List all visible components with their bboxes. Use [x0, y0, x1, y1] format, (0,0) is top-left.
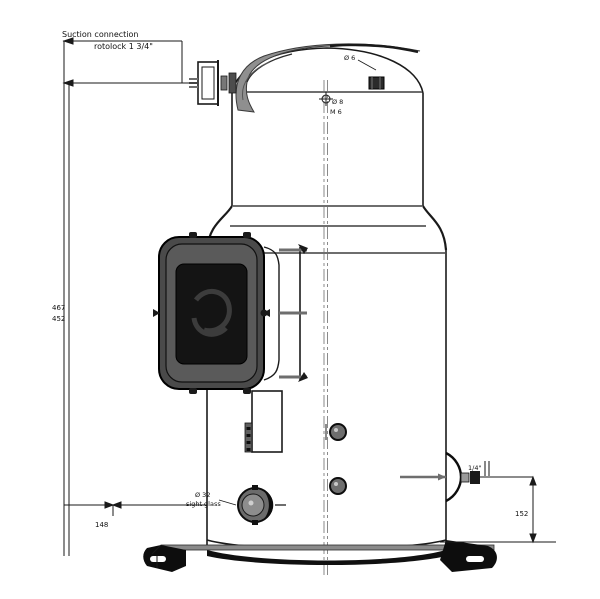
base-plate — [143, 540, 497, 572]
suction-height-label: 452 — [52, 315, 65, 323]
drawing-canvas: Suction connection rotolock 1 3/4" Ø 6 Ø… — [0, 0, 600, 599]
center-target-label-line1: Ø 8 — [332, 98, 343, 106]
centerline-target-marker — [319, 92, 333, 106]
center-target-label-line2: M 6 — [330, 108, 342, 116]
suction-stem — [221, 73, 236, 93]
overall-height-label: 467 — [52, 304, 65, 312]
suction-label-line2: rotolock 1 3/4" — [94, 42, 153, 51]
terminal-box — [153, 232, 308, 394]
sight-glass — [219, 485, 286, 525]
discharge-height-label: 152 — [515, 510, 528, 518]
weld-seam-lines — [208, 92, 445, 253]
sight-glass-label-line2: sight glass — [186, 500, 221, 508]
vertical-centerline — [324, 80, 328, 576]
conduit-plate — [245, 391, 282, 452]
discharge-size-label: 1/4" — [468, 464, 481, 472]
dimension-lines — [63, 38, 556, 568]
base-left-dim-label: 148 — [95, 521, 108, 529]
shell-ports — [326, 424, 346, 494]
dome-port-label: Ø 6 — [344, 54, 355, 62]
sight-glass-label-line1: Ø 32 — [195, 491, 210, 499]
terminal-box-flange — [264, 244, 308, 382]
annotations: Suction connection rotolock 1 3/4" Ø 6 Ø… — [52, 30, 528, 529]
suction-label-line1: Suction connection — [62, 30, 139, 39]
compressor-outline-drawing: Suction connection rotolock 1 3/4" Ø 6 Ø… — [0, 0, 600, 599]
dome-stud-port — [358, 60, 384, 89]
